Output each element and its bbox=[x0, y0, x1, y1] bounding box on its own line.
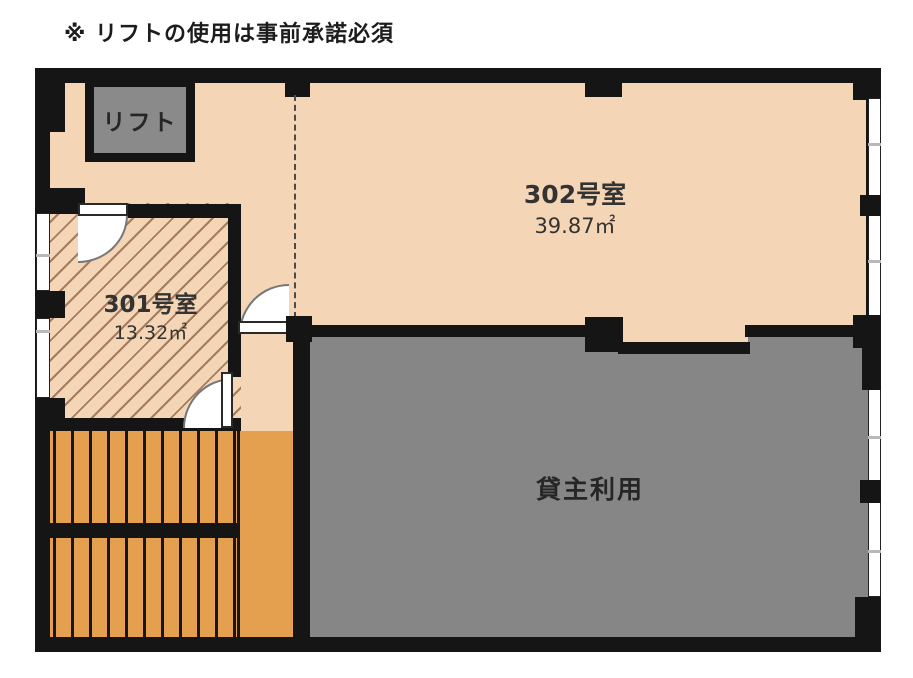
lift-label: リフト bbox=[103, 103, 178, 137]
floor-plan: リフト bbox=[35, 68, 881, 652]
room-301-area-value: 13.32㎡ bbox=[68, 321, 233, 347]
door-leaf-301-right bbox=[221, 372, 233, 428]
wall-301-top bbox=[126, 204, 241, 218]
window-tick bbox=[36, 254, 50, 257]
window-tick bbox=[868, 436, 881, 439]
landlord-label: 貸主利用 bbox=[465, 470, 715, 506]
column-right-1 bbox=[860, 195, 881, 216]
column-left-mid bbox=[35, 291, 65, 318]
lift-box: リフト bbox=[85, 78, 195, 162]
corner-column-bottom-right bbox=[855, 597, 881, 652]
wall-landlord-notch bbox=[618, 342, 750, 354]
column-left-bottom bbox=[35, 398, 65, 431]
corner-column-top-right bbox=[853, 68, 881, 100]
room-302-name: 302号室 bbox=[455, 178, 695, 212]
stair-divider bbox=[40, 523, 240, 538]
room-302-area-value: 39.87㎡ bbox=[455, 212, 695, 240]
column-right-2 bbox=[853, 315, 881, 348]
dashed-boundary-302 bbox=[294, 95, 296, 318]
wall-landlord-left bbox=[293, 317, 310, 637]
room-301-label: 301号室 13.32㎡ bbox=[68, 290, 233, 347]
note-text: ※ リフトの使用は事前承諾必須 bbox=[64, 16, 394, 48]
wall-landlord-top-1 bbox=[308, 325, 593, 337]
window-tick bbox=[36, 330, 50, 333]
wall-landlord-top-2 bbox=[745, 325, 857, 337]
column-top-b bbox=[585, 83, 622, 97]
wall-right-gray-top bbox=[862, 348, 881, 390]
column-top-a bbox=[285, 83, 310, 97]
window-tick bbox=[868, 143, 881, 146]
column-right-3 bbox=[860, 480, 881, 503]
door-leaf-corridor bbox=[238, 321, 290, 334]
room-301-name: 301号室 bbox=[68, 290, 233, 321]
window-tick bbox=[868, 550, 881, 553]
window-tick bbox=[868, 260, 881, 263]
door-leaf-301-top bbox=[78, 203, 128, 216]
corner-column-top-left bbox=[35, 68, 65, 132]
window-left-upper bbox=[36, 213, 50, 291]
room-302-label: 302号室 39.87㎡ bbox=[455, 178, 695, 240]
